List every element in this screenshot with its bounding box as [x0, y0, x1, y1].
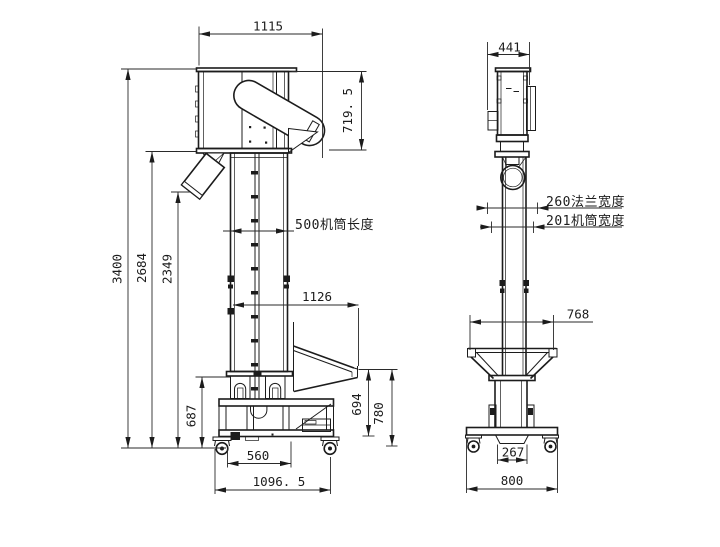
- side-barrel: [500, 157, 530, 376]
- dim-mount-width-value: 267: [502, 445, 525, 460]
- dim-hopper-depth: 768: [470, 307, 593, 351]
- dim-head-depth-value: 441: [498, 40, 521, 55]
- dim-head-underside-height: 2684: [134, 152, 196, 449]
- side-boot-base: [467, 376, 558, 444]
- elevator-dimension-drawing: 1115 719. 5 500机筒长度 3400 2684 2349: [0, 0, 720, 547]
- dim-wheel-span-value: 560: [247, 448, 270, 463]
- front-view: 1115 719. 5 500机筒长度 3400 2684 2349: [110, 19, 398, 495]
- dim-inlet-span: 1126: [233, 289, 359, 366]
- inspection-port: [501, 166, 525, 190]
- dim-outlet-height-value: 2349: [160, 254, 175, 284]
- front-barrel: [228, 153, 291, 399]
- front-feed-hopper: [294, 322, 358, 392]
- drawing-canvas: 1115 719. 5 500机筒长度 3400 2684 2349: [0, 0, 720, 547]
- front-caster-right: [321, 437, 339, 454]
- side-feed-hopper: [468, 349, 558, 379]
- dim-barrel-length: 500机筒长度: [223, 217, 374, 233]
- dim-frame-height-value: 687: [184, 405, 199, 428]
- side-left-bracket: [488, 112, 498, 131]
- foot-bracket-right: [266, 376, 286, 399]
- front-drive-unit: [228, 75, 330, 151]
- dim-hopper-to-ground-value: 780: [371, 402, 386, 425]
- side-caster-right: [543, 435, 559, 452]
- dim-barrel-width-value: 201机筒宽度: [546, 213, 625, 229]
- dim-barrel-length-value: 500机筒长度: [295, 217, 374, 233]
- side-view: 441 260法兰宽度 201机筒宽度 768: [466, 40, 625, 494]
- head-bolt-dots: [249, 126, 267, 144]
- dim-head-underside-value: 2684: [134, 253, 149, 283]
- dim-head-width-value: 1115: [253, 19, 283, 34]
- front-caster-left: [213, 437, 231, 454]
- dim-hopper-to-ground: 780: [371, 370, 398, 447]
- dim-mount-width: 267: [498, 445, 528, 465]
- side-elevator-head: [488, 68, 536, 157]
- dim-base-width: 1096. 5: [215, 449, 331, 494]
- front-elevator-head: [196, 68, 330, 153]
- front-base-frame: [219, 399, 334, 441]
- dim-overall-height-value: 3400: [110, 254, 125, 284]
- dim-hopper-depth-value: 768: [567, 307, 590, 322]
- side-motor-bracket: [527, 87, 536, 131]
- side-caster-left: [466, 435, 482, 452]
- dim-base-depth-value: 800: [501, 473, 524, 488]
- dim-hopper-to-frame-value: 694: [349, 393, 364, 416]
- dim-flange-width: 260法兰宽度: [477, 194, 625, 214]
- dim-wheel-span: 560: [228, 442, 292, 468]
- foot-bracket-left: [231, 376, 251, 399]
- dim-head-height-value: 719. 5: [340, 88, 355, 133]
- dim-base-width-value: 1096. 5: [253, 474, 306, 489]
- dim-inlet-span-value: 1126: [302, 289, 332, 304]
- dim-flange-width-value: 260法兰宽度: [546, 194, 625, 210]
